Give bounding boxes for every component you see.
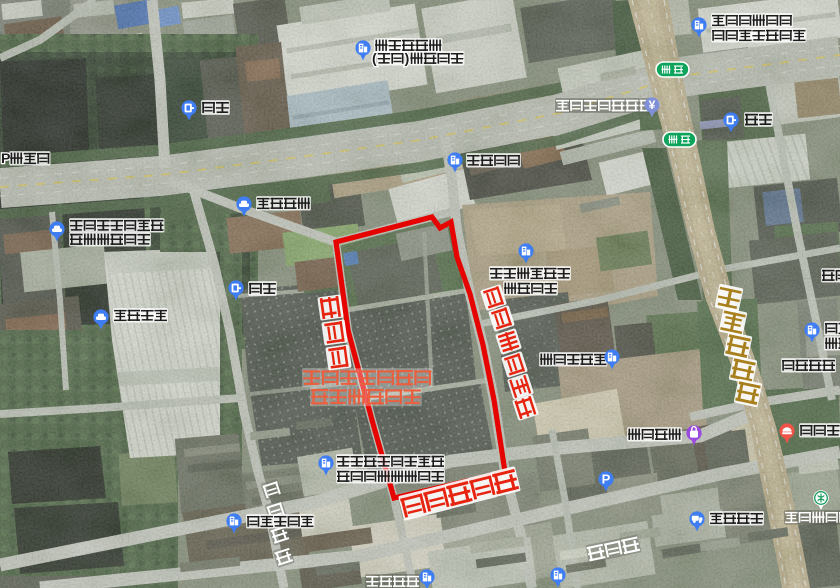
svg-text:¥: ¥ <box>649 98 656 112</box>
svg-text:P: P <box>602 472 611 487</box>
svg-text:): ) <box>405 50 410 66</box>
svg-text:(: ( <box>372 50 377 66</box>
svg-text:P: P <box>1 150 10 166</box>
